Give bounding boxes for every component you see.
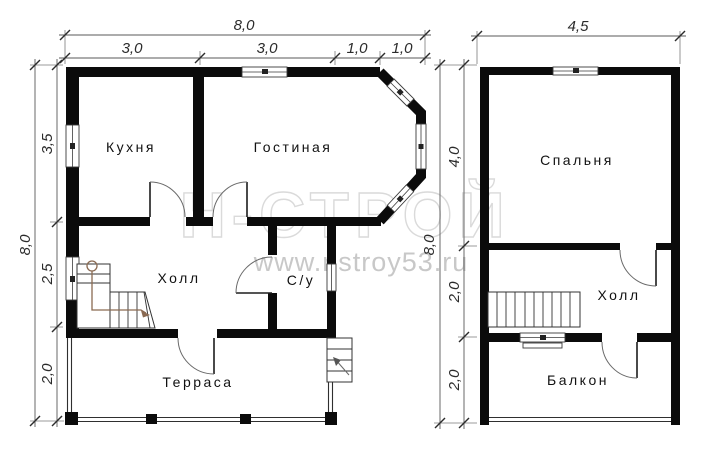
floor-plan-image: Н-СТРОЙ www.nstroy53.ru xyxy=(0,0,722,450)
dim-f1-seg1: 3,0 xyxy=(122,40,144,57)
room-label-kitchen: Кухня xyxy=(106,139,156,155)
room-label-hall1: Холл xyxy=(158,270,201,286)
balcony-railing xyxy=(489,418,671,422)
watermark: Н-СТРОЙ www.nstroy53.ru xyxy=(180,178,511,277)
floor1-dimensions-top: 8,0 3,0 3,0 1,0 1,0 xyxy=(59,17,431,65)
dim-f1-seg2: 3,0 xyxy=(257,40,279,57)
bedroom-door xyxy=(620,250,656,286)
room-label-bedroom: Спальня xyxy=(540,152,614,168)
terrace-post xyxy=(65,412,78,425)
floor2-dimensions-top: 4,5 xyxy=(471,18,686,64)
dim-f1-seg3: 1,0 xyxy=(347,40,369,57)
entry-steps xyxy=(327,338,352,382)
dim-f1-left-seg1: 3,5 xyxy=(39,133,56,155)
dim-f1-total-height: 8,0 xyxy=(17,234,34,256)
terrace-post xyxy=(325,412,337,425)
room-label-living: Гостиная xyxy=(254,139,333,155)
dim-f2-left-seg2: 2,0 xyxy=(446,281,463,304)
dim-f1-left-seg3: 2,0 xyxy=(39,363,56,386)
bay-window-middle xyxy=(416,124,426,169)
watermark-brand-text: Н-СТРОЙ xyxy=(180,178,511,251)
hall2-window xyxy=(520,333,565,348)
floor2-staircase xyxy=(488,292,580,327)
dim-f1-total-width: 8,0 xyxy=(234,17,256,34)
room-label-wc: С/у xyxy=(287,272,316,288)
living-top-window xyxy=(242,67,287,77)
terrace-post xyxy=(240,414,251,424)
terrace-post xyxy=(146,414,157,424)
terrace-door xyxy=(178,338,214,374)
window-sill xyxy=(523,343,562,348)
dim-f2-total-height: 8,0 xyxy=(421,234,438,256)
room-label-terrace: Терраса xyxy=(162,374,233,390)
dim-f2-left-seg3: 2,0 xyxy=(446,369,463,392)
floor1-staircase xyxy=(77,261,155,328)
dim-f1-seg4: 1,0 xyxy=(392,40,414,57)
floor2-doors xyxy=(602,250,656,378)
room-label-balcony: Балкон xyxy=(547,372,609,388)
bay-window-upper xyxy=(387,79,414,106)
room-label-hall2: Холл xyxy=(598,287,641,303)
floor1-dimensions-left: 8,0 3,5 2,5 2,0 xyxy=(17,59,64,427)
bedroom-window xyxy=(553,67,598,75)
kitchen-window xyxy=(66,125,79,167)
dim-f1-left-seg2: 2,5 xyxy=(39,263,56,286)
dim-f2-left-seg1: 4,0 xyxy=(446,146,463,168)
wc-window xyxy=(327,264,336,291)
dim-f2-total-width: 4,5 xyxy=(568,18,590,35)
